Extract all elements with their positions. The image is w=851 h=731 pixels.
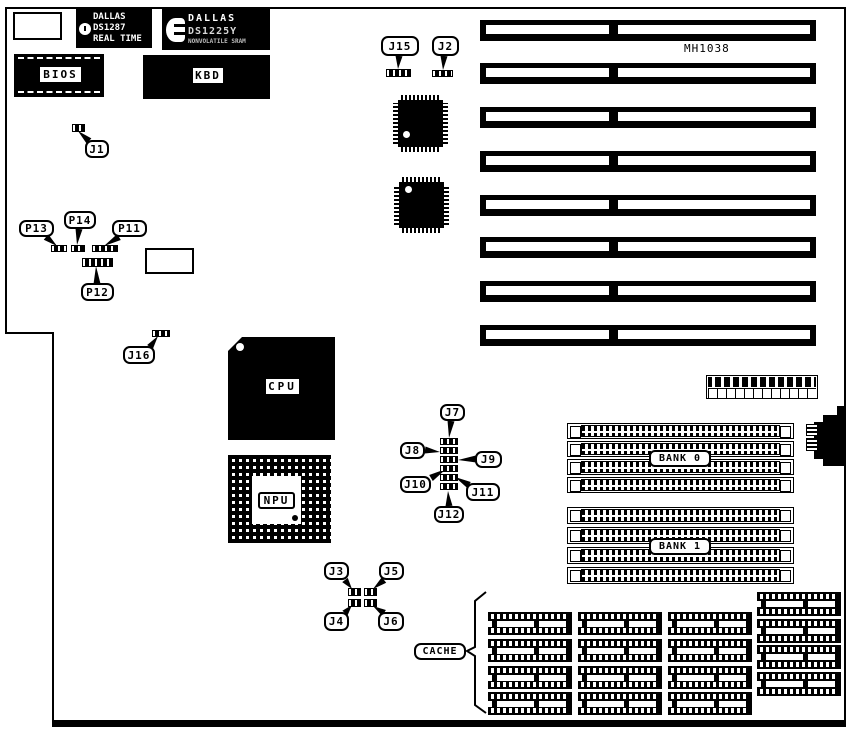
cache-chip-detail <box>808 601 835 607</box>
nvram-part: DS1225Y <box>188 26 246 39</box>
cache-chip-detail <box>491 628 569 633</box>
simm-latch <box>570 570 581 582</box>
cache-chip-detail <box>760 647 838 652</box>
cache-chip-detail <box>491 694 569 699</box>
nvram-subtitle: NONVOLATILE SRAM <box>188 38 246 46</box>
cache-chip-detail <box>497 701 534 707</box>
cache-chip-1-4 <box>488 692 572 715</box>
rtc-brand: DALLAS <box>93 12 142 23</box>
simm-latch <box>570 444 581 456</box>
isa-slot-7 <box>480 281 816 302</box>
cache-chip-2-2 <box>578 639 662 662</box>
isa-slot-6 <box>480 237 816 258</box>
npu-label: NPU <box>258 492 295 509</box>
qfp-chip-2 <box>394 177 449 233</box>
cache-chip-detail <box>760 636 838 641</box>
qfp-pins <box>401 95 440 101</box>
cache-chip-detail <box>671 614 749 619</box>
cache-chip-detail <box>587 701 624 707</box>
cache-chip-detail <box>677 621 714 627</box>
cache-chip-detail <box>671 641 749 646</box>
bios-dashed-edge <box>18 91 100 93</box>
cache-chip-detail <box>587 621 624 627</box>
cache-chip-detail <box>488 701 492 707</box>
mh1038-label: MH1038 <box>684 42 744 56</box>
cache-chip-detail <box>757 601 761 607</box>
cache-chip-detail <box>578 648 582 654</box>
simm-pins <box>581 569 780 582</box>
simm-latch <box>570 462 581 474</box>
cache-chip-detail <box>668 701 672 707</box>
alarm-clock-icon <box>76 23 93 35</box>
nvram-chip: DALLAS DS1225Y NONVOLATILE SRAM <box>162 9 270 50</box>
cache-chip-detail <box>578 701 582 707</box>
callout-j10: J10 <box>400 476 431 493</box>
simm-latch <box>570 530 581 542</box>
simm-latch <box>780 462 791 474</box>
cache-chip-detail <box>629 621 656 627</box>
npu-pin1-dot <box>292 515 298 521</box>
jumper-block <box>348 599 361 607</box>
cache-chip-1-3 <box>488 666 572 689</box>
callout-p11: P11 <box>112 220 147 237</box>
cache-chip-detail <box>578 621 582 627</box>
kbd-label: KBD <box>192 67 224 84</box>
callout-j6: J6 <box>378 612 404 631</box>
callout-j12: J12 <box>434 506 464 523</box>
callout-j16: J16 <box>123 346 155 364</box>
cache-chip-detail <box>808 628 835 634</box>
cache-chip-detail <box>671 668 749 673</box>
cache-chip-detail <box>719 701 746 707</box>
socket-outline-2 <box>145 248 194 274</box>
cache-chip-detail <box>581 655 659 660</box>
cache-chip-detail <box>719 621 746 627</box>
cache-chip-4-3 <box>757 645 841 669</box>
cache-chip-3-4 <box>668 692 752 715</box>
bank0-label: BANK 0 <box>649 450 711 467</box>
jumper-block <box>364 588 377 596</box>
cache-chip-detail <box>629 648 656 654</box>
cache-chip-4-1 <box>757 592 841 616</box>
cache-chip-detail <box>488 621 492 627</box>
cache-chip-detail <box>671 655 749 660</box>
callout-j11: J11 <box>466 483 500 501</box>
cache-chip-detail <box>677 675 714 681</box>
simm-latch <box>780 550 791 562</box>
qfp-pin1-dot <box>405 186 412 193</box>
power-connector <box>706 375 818 399</box>
jumper-block <box>152 330 170 337</box>
qfp-pins <box>443 185 449 225</box>
cache-chip-2-3 <box>578 666 662 689</box>
isa-slot-2 <box>480 63 816 84</box>
simm-latch <box>570 510 581 522</box>
cache-chip-detail <box>539 675 566 681</box>
jumper-block <box>432 70 453 77</box>
cache-chip-detail <box>491 655 569 660</box>
simm-pins <box>581 479 780 491</box>
bios-dashed-edge <box>18 57 100 59</box>
cache-chip-detail <box>766 681 803 687</box>
callout-j2: J2 <box>432 36 459 56</box>
cache-chip-detail <box>581 694 659 699</box>
jumper-block <box>440 483 458 490</box>
cache-chip-detail <box>766 654 803 660</box>
cache-chip-detail <box>766 628 803 634</box>
jumper-block <box>82 258 113 267</box>
cache-chip-detail <box>719 675 746 681</box>
cache-chip-detail <box>671 628 749 633</box>
jumper-block <box>440 465 458 472</box>
simm-latch <box>780 444 791 456</box>
isa-slot-5 <box>480 195 816 216</box>
qfp-pins <box>393 103 399 144</box>
simm-latch <box>780 530 791 542</box>
cache-chip-detail <box>581 614 659 619</box>
jumper-block <box>440 456 458 463</box>
jumper-block <box>71 245 85 252</box>
jumper-block <box>364 599 377 607</box>
cache-chip-detail <box>668 675 672 681</box>
cache-chip-detail <box>671 708 749 713</box>
bank1-label: BANK 1 <box>649 538 711 555</box>
cache-chip-detail <box>671 682 749 687</box>
rtc-chip: DALLAS DS1287 REAL TIME <box>76 9 152 48</box>
cache-chip-1-1 <box>488 612 572 635</box>
cache-chip-2-4 <box>578 692 662 715</box>
callout-j7: J7 <box>440 404 465 421</box>
power-connector-terminals <box>708 388 816 398</box>
callout-p13: P13 <box>19 220 54 237</box>
cache-chip-detail <box>491 708 569 713</box>
cache-chip-detail <box>581 682 659 687</box>
jumper-block <box>440 447 458 454</box>
jumper-block <box>440 474 458 481</box>
cache-chip-detail <box>760 674 838 679</box>
cache-chip-3-1 <box>668 612 752 635</box>
cache-chip-detail <box>539 621 566 627</box>
jumper-block <box>72 124 85 132</box>
callout-j1: J1 <box>85 140 109 158</box>
simm-latch <box>780 480 791 492</box>
callout-p14: P14 <box>64 211 96 229</box>
cache-chip-detail <box>491 614 569 619</box>
simm-latch <box>570 480 581 492</box>
cache-chip-detail <box>677 648 714 654</box>
cache-chip-detail <box>587 648 624 654</box>
cache-chip-detail <box>491 668 569 673</box>
rtc-subtitle: REAL TIME <box>93 34 142 45</box>
jumper-block <box>440 438 458 445</box>
callout-j4: J4 <box>324 612 349 631</box>
cache-chip-detail <box>581 628 659 633</box>
cache-chip-detail <box>629 675 656 681</box>
qfp-pins <box>401 146 440 152</box>
socket-outline-1 <box>13 12 62 40</box>
power-connector-pins <box>708 377 816 387</box>
jumper-block <box>386 69 411 77</box>
cpu-chip: CPU <box>228 337 335 440</box>
callout-j15: J15 <box>381 36 419 56</box>
cache-chip-detail <box>581 668 659 673</box>
cache-chip-detail <box>668 648 672 654</box>
isa-slot-1 <box>480 20 816 41</box>
cache-chip-detail <box>760 621 838 626</box>
cache-chip-detail <box>760 609 838 614</box>
cache-chip-detail <box>488 648 492 654</box>
isa-slot-3 <box>480 107 816 128</box>
cache-chip-detail <box>760 662 838 667</box>
cache-chip-detail <box>766 601 803 607</box>
callout-p12: P12 <box>81 283 114 301</box>
callout-j5: J5 <box>379 562 404 580</box>
qfp-pins <box>402 227 441 233</box>
simm-latch <box>780 510 791 522</box>
cache-chip-3-2 <box>668 639 752 662</box>
simm-socket-bank0-4 <box>567 477 794 493</box>
cache-chip-detail <box>491 641 569 646</box>
cache-chip-detail <box>719 648 746 654</box>
cache-chip-detail <box>497 648 534 654</box>
cache-chip-detail <box>539 648 566 654</box>
motherboard-diagram: DALLAS DS1287 REAL TIME DALLAS DS1225Y N… <box>0 0 851 731</box>
jumper-block <box>92 245 118 252</box>
simm-latch <box>570 426 581 438</box>
cache-chip-detail <box>629 701 656 707</box>
cache-chip-detail <box>677 701 714 707</box>
callout-j3: J3 <box>324 562 349 580</box>
cpu-pin1-dot <box>236 343 244 351</box>
cache-chip-detail <box>578 675 582 681</box>
callout-j9: J9 <box>475 451 502 468</box>
jumper-block <box>51 245 67 252</box>
simm-socket-bank1-1 <box>567 507 794 524</box>
cache-chip-detail <box>491 682 569 687</box>
cache-chip-detail <box>808 681 835 687</box>
simm-latch <box>570 550 581 562</box>
nvram-brand: DALLAS <box>188 13 246 26</box>
callout-j8: J8 <box>400 442 425 459</box>
bios-label: BIOS <box>39 66 82 83</box>
cache-chip-detail <box>760 594 838 599</box>
cache-chip-detail <box>581 708 659 713</box>
cache-chip-detail <box>757 628 761 634</box>
cache-label: CACHE <box>414 643 466 660</box>
rtc-part: DS1287 <box>93 23 142 34</box>
simm-socket-bank1-4 <box>567 567 794 584</box>
cache-chip-detail <box>757 681 761 687</box>
cache-chip-4-4 <box>757 672 841 696</box>
qfp-chip-1 <box>393 95 448 152</box>
qfp-pin1-dot <box>403 131 410 138</box>
cpu-label: CPU <box>266 379 299 394</box>
cache-chip-detail <box>581 641 659 646</box>
cache-chip-detail <box>488 675 492 681</box>
cache-chip-4-2 <box>757 619 841 643</box>
cache-chip-detail <box>497 621 534 627</box>
cache-chip-detail <box>668 621 672 627</box>
simm-socket-bank0-1 <box>567 423 794 439</box>
cache-chip-detail <box>587 675 624 681</box>
dallas-logo-icon <box>162 18 188 42</box>
isa-slot-8 <box>480 325 816 346</box>
qfp-pins <box>394 185 400 225</box>
isa-slot-4 <box>480 151 816 172</box>
simm-latch <box>780 570 791 582</box>
cache-chip-1-2 <box>488 639 572 662</box>
cache-chip-detail <box>539 701 566 707</box>
simm-pins <box>581 509 780 522</box>
cache-chip-detail <box>808 654 835 660</box>
bios-chip: BIOS <box>14 54 104 97</box>
simm-latch <box>780 426 791 438</box>
cache-chip-detail <box>671 694 749 699</box>
qfp-pins <box>398 100 443 147</box>
cache-chip-3-3 <box>668 666 752 689</box>
jumper-block <box>348 588 361 596</box>
cache-chip-detail <box>760 689 838 694</box>
simm-pins <box>581 425 780 437</box>
qfp-pins <box>402 177 441 183</box>
cache-chip-detail <box>497 675 534 681</box>
qfp-pins <box>442 103 448 144</box>
cache-chip-2-1 <box>578 612 662 635</box>
keyboard-connector-pin <box>806 438 818 451</box>
keyboard-connector-pin <box>806 424 818 436</box>
cache-chip-detail <box>757 654 761 660</box>
kbd-chip: KBD <box>143 55 270 99</box>
